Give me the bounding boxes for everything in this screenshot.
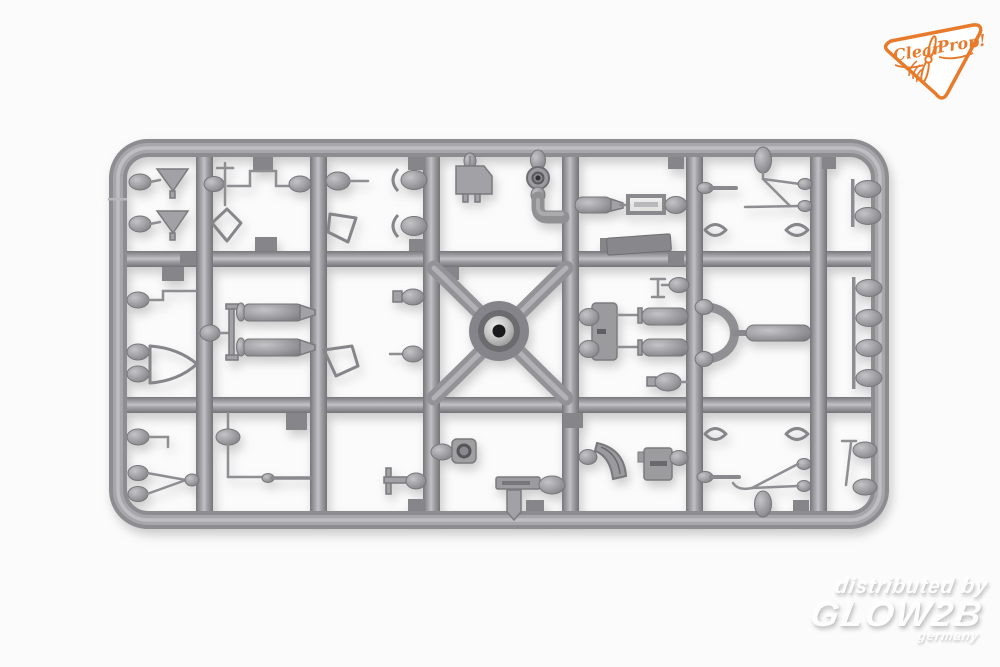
part-cooling-fan-segment	[579, 443, 626, 479]
part-rod-with-tip-1	[697, 183, 736, 194]
part-float-with-fishtail-1	[393, 169, 427, 191]
photo-canvas: Clear Prop! distributed by GLOW2B german…	[0, 0, 1000, 667]
mold-seam	[108, 198, 127, 201]
part-lens-frame-4	[786, 429, 808, 440]
runner-vertical-3	[423, 150, 440, 520]
brand-badge: Clear Prop!	[881, 20, 989, 104]
part-pitot-tube-1	[127, 291, 196, 308]
runner-horizontal-2	[120, 397, 878, 413]
sprue-injection-hub	[469, 301, 529, 361]
part-horseshoe-intake	[695, 300, 811, 367]
part-drop-tank-1	[237, 303, 316, 321]
part-lens-frame-1	[705, 225, 726, 236]
part-bullet-with-pin-1	[326, 172, 368, 190]
part-shield-frame-1	[328, 214, 356, 242]
part-wishbone-strut	[128, 466, 199, 502]
part-needle-rod	[262, 474, 310, 483]
part-lens-frame-2	[786, 225, 808, 236]
runner-vertical-2	[310, 150, 327, 520]
part-bullet-with-pin-2	[390, 346, 424, 362]
part-pitot-tube-3	[216, 413, 262, 477]
part-float-with-fishtail-2	[393, 215, 427, 237]
distributor-watermark: distributed by GLOW2B germany	[718, 576, 990, 642]
part-pitot-tube-2	[127, 429, 168, 447]
part-bomb-with-lug	[647, 373, 688, 391]
part-canopy-frame	[127, 344, 197, 383]
sprue-photo	[0, 0, 1000, 667]
part-radiator-with-cylinders	[592, 303, 688, 360]
part-drop-tank-2	[237, 338, 316, 356]
part-funnel-cone-1	[129, 169, 188, 198]
runner-vertical-6	[810, 150, 827, 520]
part-bullet-pod-left-1	[579, 309, 599, 326]
part-bullet-with-box	[393, 289, 424, 305]
part-valve-tee	[651, 278, 689, 298]
part-wheel-with-intake-elbow	[527, 150, 563, 217]
part-shield-frame-2	[324, 346, 358, 376]
part-tee-bracket	[384, 468, 426, 494]
part-lens-frame-3	[705, 429, 726, 440]
part-instrument-plate	[456, 153, 492, 202]
watermark-line-distributed-by: distributed by	[726, 576, 990, 597]
runner-vertical-5	[686, 150, 703, 520]
runner-horizontal-1	[120, 251, 878, 267]
part-funnel-cone-2	[129, 211, 188, 240]
part-bullet-pod-left-2	[579, 341, 599, 358]
part-kite-frame	[212, 209, 241, 241]
part-slotted-bracket	[638, 448, 688, 480]
x-runner	[434, 268, 566, 398]
watermark-brand-glow2b: GLOW2B	[709, 597, 986, 633]
part-fuel-tank-with-mount-frame	[575, 196, 687, 214]
part-rod-with-tip-2	[697, 472, 739, 483]
